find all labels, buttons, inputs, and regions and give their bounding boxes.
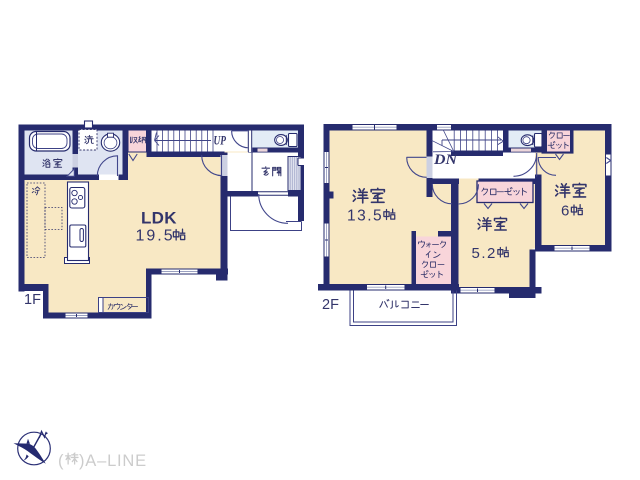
svg-text:1F: 1F: [24, 292, 41, 308]
svg-text:UP: UP: [214, 134, 227, 148]
svg-text:LDK: LDK: [141, 209, 177, 228]
svg-text:)A–LINE: )A–LINE: [79, 452, 147, 470]
svg-text:19.5: 19.5: [136, 228, 175, 245]
svg-text:5.2: 5.2: [472, 245, 497, 262]
svg-text:13.5: 13.5: [347, 208, 383, 225]
svg-text:2F: 2F: [322, 297, 339, 313]
svg-text:(: (: [58, 452, 64, 470]
svg-text:DN: DN: [433, 152, 458, 168]
svg-text:6: 6: [561, 203, 569, 220]
